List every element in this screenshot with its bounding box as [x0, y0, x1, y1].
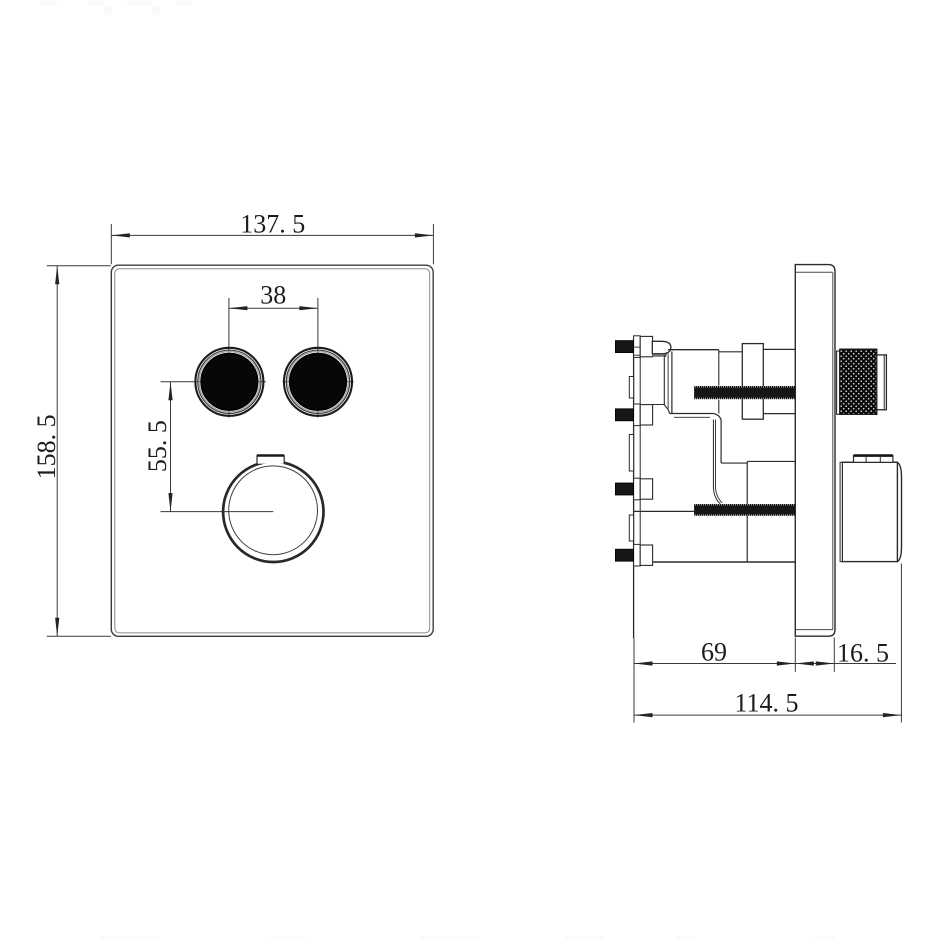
svg-text:55. 5: 55. 5 [143, 420, 172, 472]
svg-text:158. 5: 158. 5 [32, 414, 61, 479]
svg-text:69: 69 [701, 638, 727, 667]
svg-text:114. 5: 114. 5 [734, 689, 798, 718]
svg-text:137. 5: 137. 5 [240, 210, 305, 239]
svg-text:38: 38 [260, 281, 286, 310]
svg-text:16. 5: 16. 5 [837, 639, 889, 668]
